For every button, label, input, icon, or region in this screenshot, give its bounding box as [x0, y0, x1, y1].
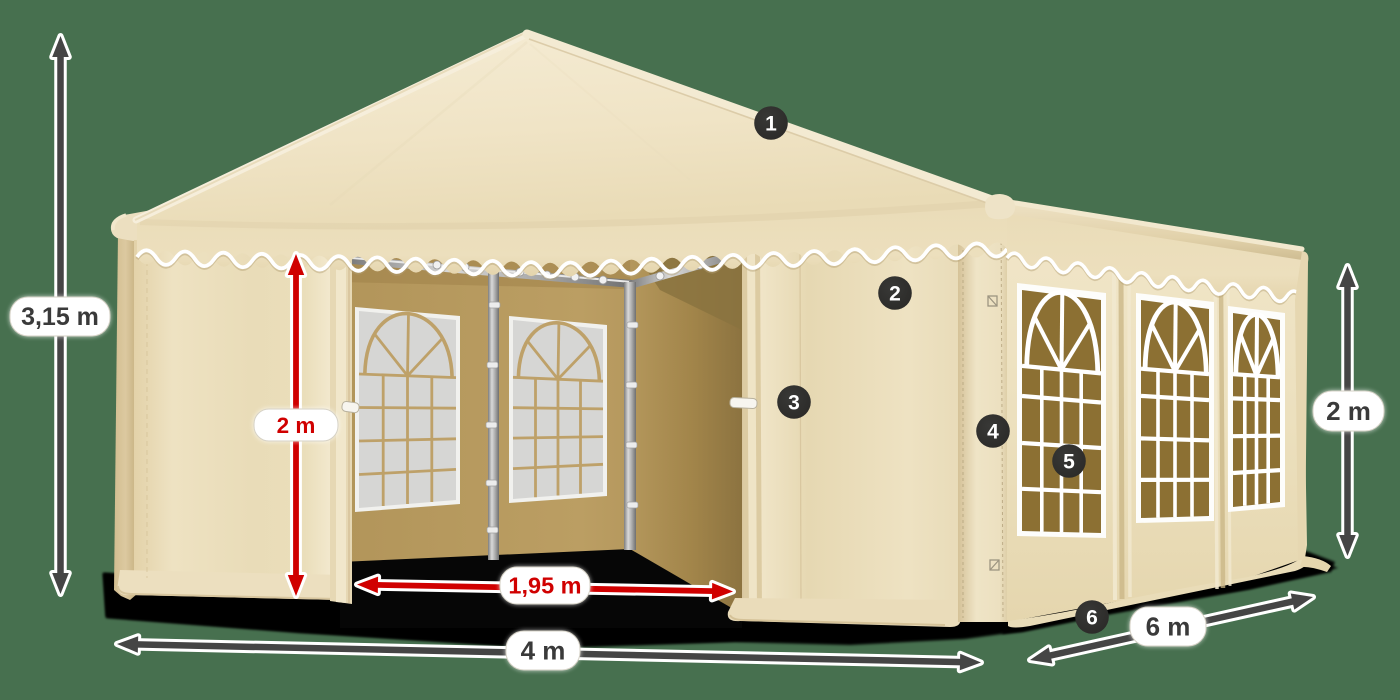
svg-text:3,15 m: 3,15 m — [21, 303, 99, 331]
svg-text:6: 6 — [1086, 607, 1098, 630]
svg-text:2 m: 2 m — [1326, 396, 1371, 426]
svg-text:3: 3 — [788, 392, 800, 415]
svg-text:4 m: 4 m — [521, 636, 566, 666]
svg-text:5: 5 — [1063, 451, 1075, 474]
svg-text:2: 2 — [889, 283, 901, 306]
svg-text:1,95 m: 1,95 m — [508, 573, 581, 599]
svg-text:6 m: 6 m — [1146, 612, 1191, 642]
svg-text:2 m: 2 m — [277, 413, 316, 438]
svg-text:4: 4 — [987, 421, 999, 444]
svg-text:1: 1 — [765, 113, 777, 136]
